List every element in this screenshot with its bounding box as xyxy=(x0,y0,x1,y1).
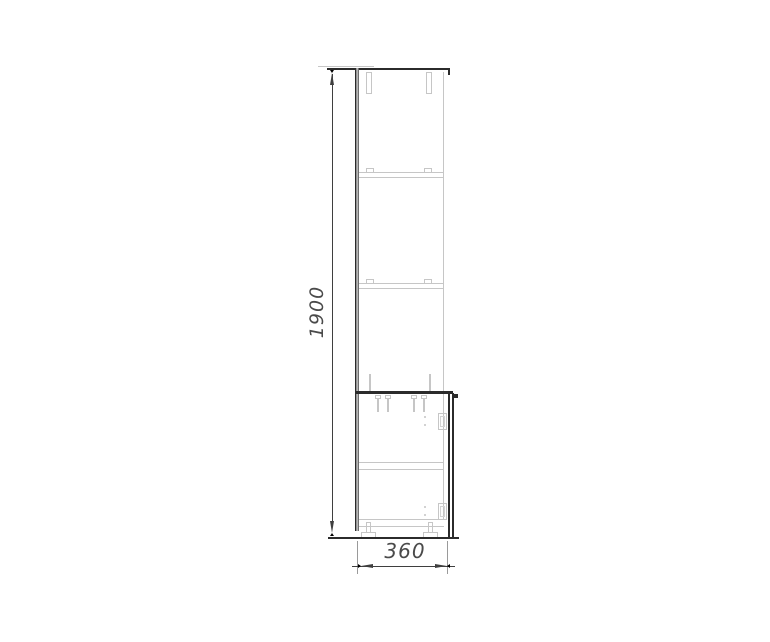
top-panel-rear-step xyxy=(448,68,450,75)
dowel-pin xyxy=(426,72,432,94)
door-edge-inner xyxy=(448,393,450,539)
base-cabinet-top-edge xyxy=(355,391,453,394)
shelf-pin xyxy=(424,279,432,284)
base-shelf-line xyxy=(359,462,444,470)
height-dimension-label: 1900 xyxy=(307,282,327,342)
shelf-pin xyxy=(366,279,374,284)
dimension-arrow-right xyxy=(435,564,450,568)
hinge-top-cup xyxy=(440,416,445,427)
depth-dimension-label: 360 xyxy=(375,541,435,561)
cam-bolt-stem xyxy=(377,399,379,412)
cam-bolt-stem xyxy=(413,399,415,412)
top-panel-edge xyxy=(327,68,450,70)
depth-extension-line-right xyxy=(447,541,448,574)
cam-bolt-stem xyxy=(423,399,425,412)
shelf-pin xyxy=(424,168,432,173)
dimension-arrow-left xyxy=(358,564,373,568)
depth-extension-line-left xyxy=(357,541,358,574)
hinge-screw-dot xyxy=(424,514,426,516)
shelf-pin xyxy=(366,168,374,173)
bottom-panel-line xyxy=(359,519,444,520)
technical-drawing-canvas: 1900 360 xyxy=(0,0,770,642)
dowel-pin xyxy=(429,374,431,391)
dowel-pin xyxy=(369,374,371,391)
hinge-screw-dot xyxy=(424,506,426,508)
carcass-hidden-edge xyxy=(443,72,444,520)
top-extension-line xyxy=(318,66,374,67)
dimension-arrow-up xyxy=(330,70,334,85)
door-edge-outer xyxy=(452,393,454,539)
hinge-screw-dot xyxy=(424,416,426,418)
height-dimension-line xyxy=(332,74,333,526)
cam-bolt-stem xyxy=(387,399,389,412)
dimension-arrow-down xyxy=(330,521,334,536)
hinge-bottom-cup xyxy=(440,506,445,517)
dowel-pin xyxy=(366,72,372,94)
hinge-screw-dot xyxy=(424,424,426,426)
